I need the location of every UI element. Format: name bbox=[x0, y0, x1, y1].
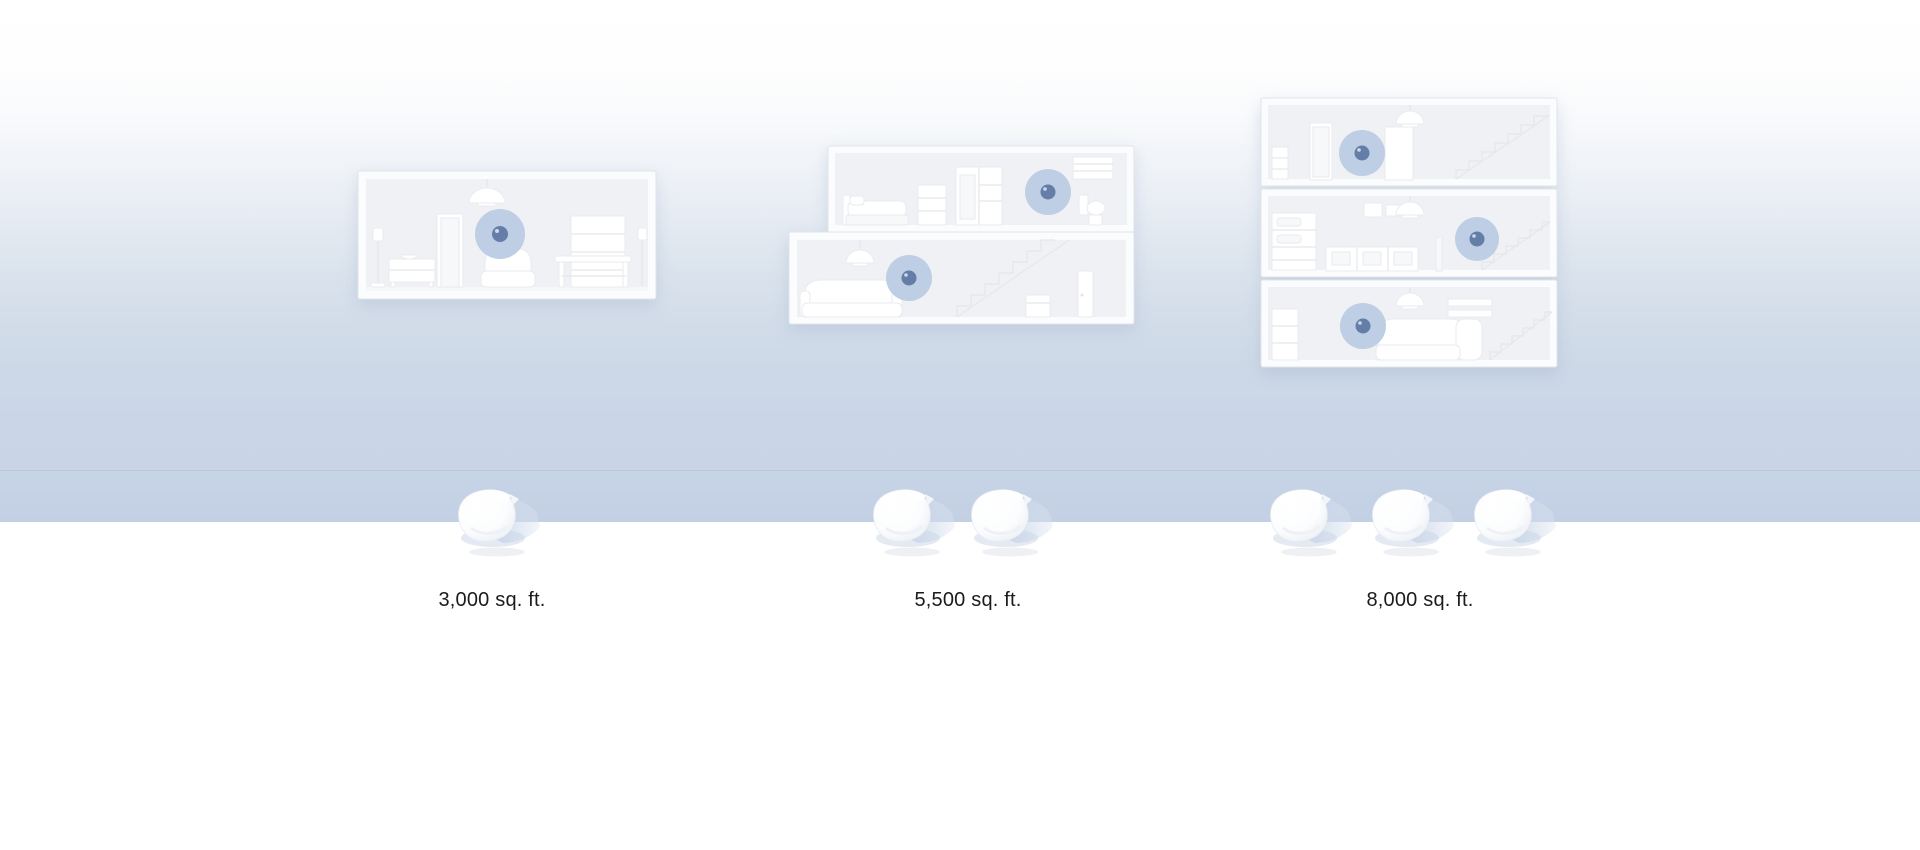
coverage-point bbox=[1340, 303, 1386, 349]
wifi-router-icon bbox=[960, 480, 1060, 560]
floorplan-3-top-floor bbox=[1261, 98, 1557, 186]
coverage-point bbox=[1025, 169, 1071, 215]
coverage-point bbox=[886, 255, 932, 301]
coverage-point bbox=[475, 209, 525, 259]
floorplan-3-bottom-floor bbox=[1261, 280, 1557, 367]
wifi-router-icon bbox=[1361, 480, 1461, 560]
floorplan-2-lower-floor bbox=[789, 232, 1134, 324]
sqft-label-3000: 3,000 sq. ft. bbox=[438, 588, 545, 612]
coverage-point bbox=[1455, 217, 1499, 261]
floorplan-2-upper-floor bbox=[828, 146, 1134, 232]
floorplan-3-story bbox=[1260, 97, 1558, 368]
wifi-router-icon bbox=[862, 480, 962, 560]
coverage-comparison-illustration: 3,000 sq. ft. 5,500 sq. ft. 8,000 sq. ft… bbox=[0, 0, 1920, 850]
floorplan-3-middle-floor bbox=[1261, 189, 1557, 277]
wifi-router-icon bbox=[1259, 480, 1359, 560]
sqft-label-8000: 8,000 sq. ft. bbox=[1366, 588, 1473, 612]
floorplan-1-story bbox=[357, 170, 657, 300]
sqft-label-5500: 5,500 sq. ft. bbox=[914, 588, 1021, 612]
floorplan-2-story bbox=[788, 145, 1135, 325]
wifi-router-icon bbox=[447, 480, 547, 560]
white-ground bbox=[0, 522, 1920, 850]
coverage-point bbox=[1339, 130, 1385, 176]
wifi-router-icon bbox=[1463, 480, 1563, 560]
